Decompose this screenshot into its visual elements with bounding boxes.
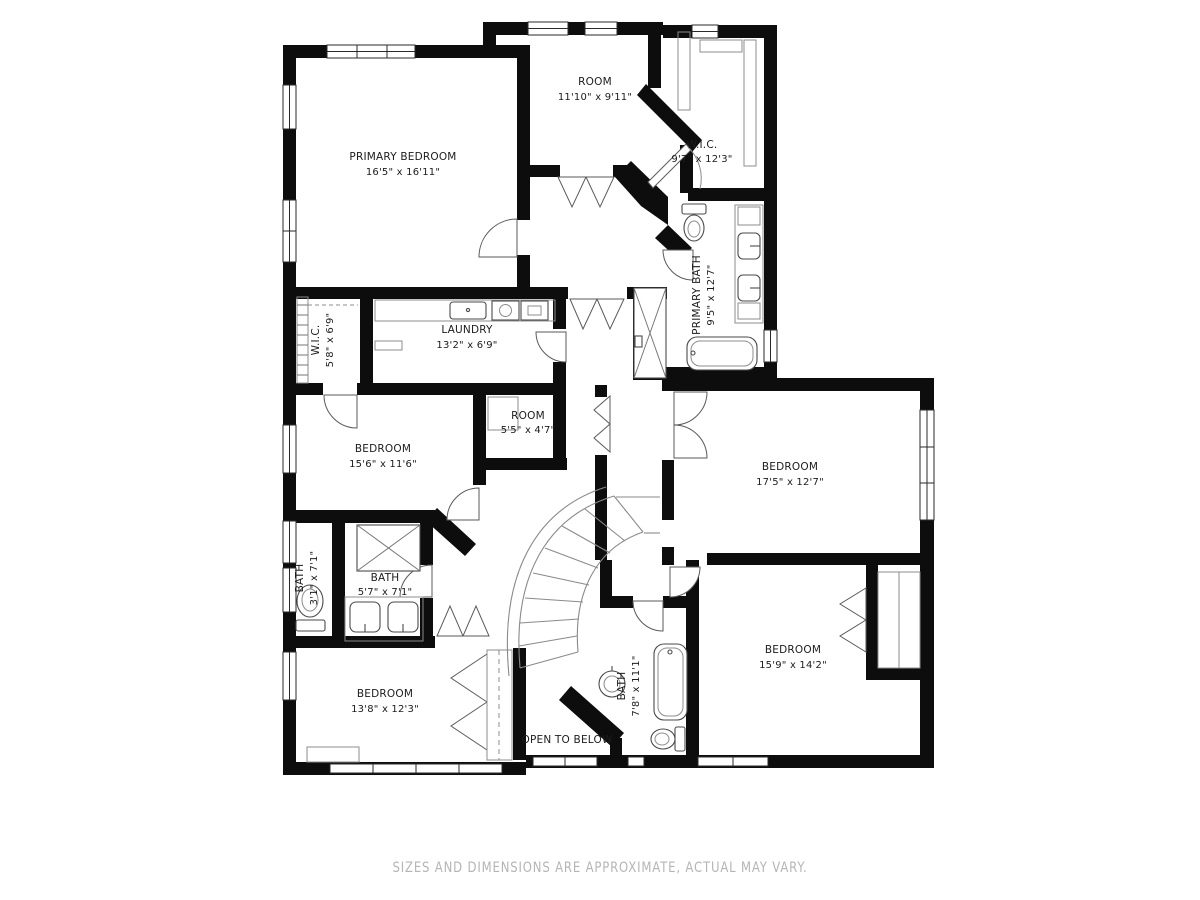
room-label-primary-bath: PRIMARY BATH <box>691 255 703 335</box>
room-dims-bedroom-br: 15'9" x 14'2" <box>759 660 827 671</box>
bifold-door <box>570 299 597 329</box>
room-label-bath-bottom: BATH <box>616 672 628 701</box>
door-swing <box>674 425 707 458</box>
room-dims-bath-mid: 5'7" x 7'1" <box>358 587 413 598</box>
room-label-bedroom-bl: BEDROOM <box>357 688 413 700</box>
bifold-door <box>451 654 487 702</box>
room-dims-bedroom-right: 17'5" x 12'7" <box>756 477 824 488</box>
room-label-primary-bedroom: PRIMARY BEDROOM <box>349 151 456 163</box>
room-label-bedroom-right: BEDROOM <box>762 461 818 473</box>
bifold-door <box>463 606 489 636</box>
bifold-door <box>586 177 614 207</box>
vanity-sinks <box>735 205 763 323</box>
bifold-door <box>437 606 463 636</box>
door-swing <box>536 332 566 362</box>
room-label-wic-left: W.I.C. <box>310 325 322 356</box>
window-seat <box>307 747 359 762</box>
room-dims-bedroom-mid: 15'6" x 11'6" <box>349 459 417 470</box>
room-label-room-small: ROOM <box>511 410 545 422</box>
room-dims-wic-left: 5'8" x 6'9" <box>325 313 336 368</box>
door-swing <box>479 219 517 257</box>
shower-icon <box>357 525 420 571</box>
room-label-bedroom-mid: BEDROOM <box>355 443 411 455</box>
room-label-laundry: LAUNDRY <box>441 324 493 336</box>
closet-sliding-doors <box>878 572 920 668</box>
room-label-bedroom-br: BEDROOM <box>765 644 821 656</box>
room-dims-room-small: 5'5" x 4'7" <box>501 425 556 436</box>
room-label-bath-mid: BATH <box>371 572 400 584</box>
bathtub-icon <box>654 644 687 720</box>
disclaimer-text: SIZES AND DIMENSIONS ARE APPROXIMATE, AC… <box>393 860 808 876</box>
door-swing <box>324 395 357 428</box>
door-swing <box>663 250 693 280</box>
staircase <box>507 487 660 676</box>
room-dims-bath-left: 3'1" x 7'1" <box>309 551 320 606</box>
room-label-room-top: ROOM <box>578 76 612 88</box>
vanity-sinks <box>345 597 423 641</box>
floorplan-drawing: PRIMARY BEDROOM 16'5" x 16'11" ROOM 11'1… <box>0 0 1200 900</box>
floorplan-page: PRIMARY BEDROOM 16'5" x 16'11" ROOM 11'1… <box>0 0 1200 900</box>
toilet-icon <box>682 204 706 241</box>
room-dims-primary-bedroom: 16'5" x 16'11" <box>366 167 440 178</box>
door-swing <box>674 392 707 425</box>
room-dims-bath-bottom: 7'8" x 11'1" <box>631 655 642 716</box>
room-label-open-below: OPEN TO BELOW <box>522 734 613 746</box>
toilet-icon <box>651 727 685 751</box>
washer-icon <box>492 301 519 320</box>
room-dims-wic-top: 9'7" x 12'3" <box>671 154 732 165</box>
room-label-wic-top: W.I.C. <box>687 139 718 151</box>
bifold-door <box>558 177 586 207</box>
bifold-door <box>594 424 610 452</box>
bifold-door <box>840 620 866 652</box>
bifold-door <box>451 702 487 750</box>
door-swing <box>447 488 479 520</box>
dryer-icon <box>521 301 548 320</box>
bathtub-icon <box>687 337 757 370</box>
room-dims-laundry: 13'2" x 6'9" <box>436 340 497 351</box>
bifold-door <box>597 299 624 329</box>
room-dims-room-top: 11'10" x 9'11" <box>558 92 632 103</box>
room-dims-bedroom-bl: 13'8" x 12'3" <box>351 704 419 715</box>
shower-icon <box>634 288 666 378</box>
bifold-door <box>840 588 866 620</box>
bifold-door <box>594 396 610 424</box>
room-dims-primary-bath: 9'5" x 12'7" <box>706 264 717 325</box>
fixtures <box>296 32 920 762</box>
door-swing <box>633 601 663 631</box>
room-label-bath-left: BATH <box>294 564 306 593</box>
